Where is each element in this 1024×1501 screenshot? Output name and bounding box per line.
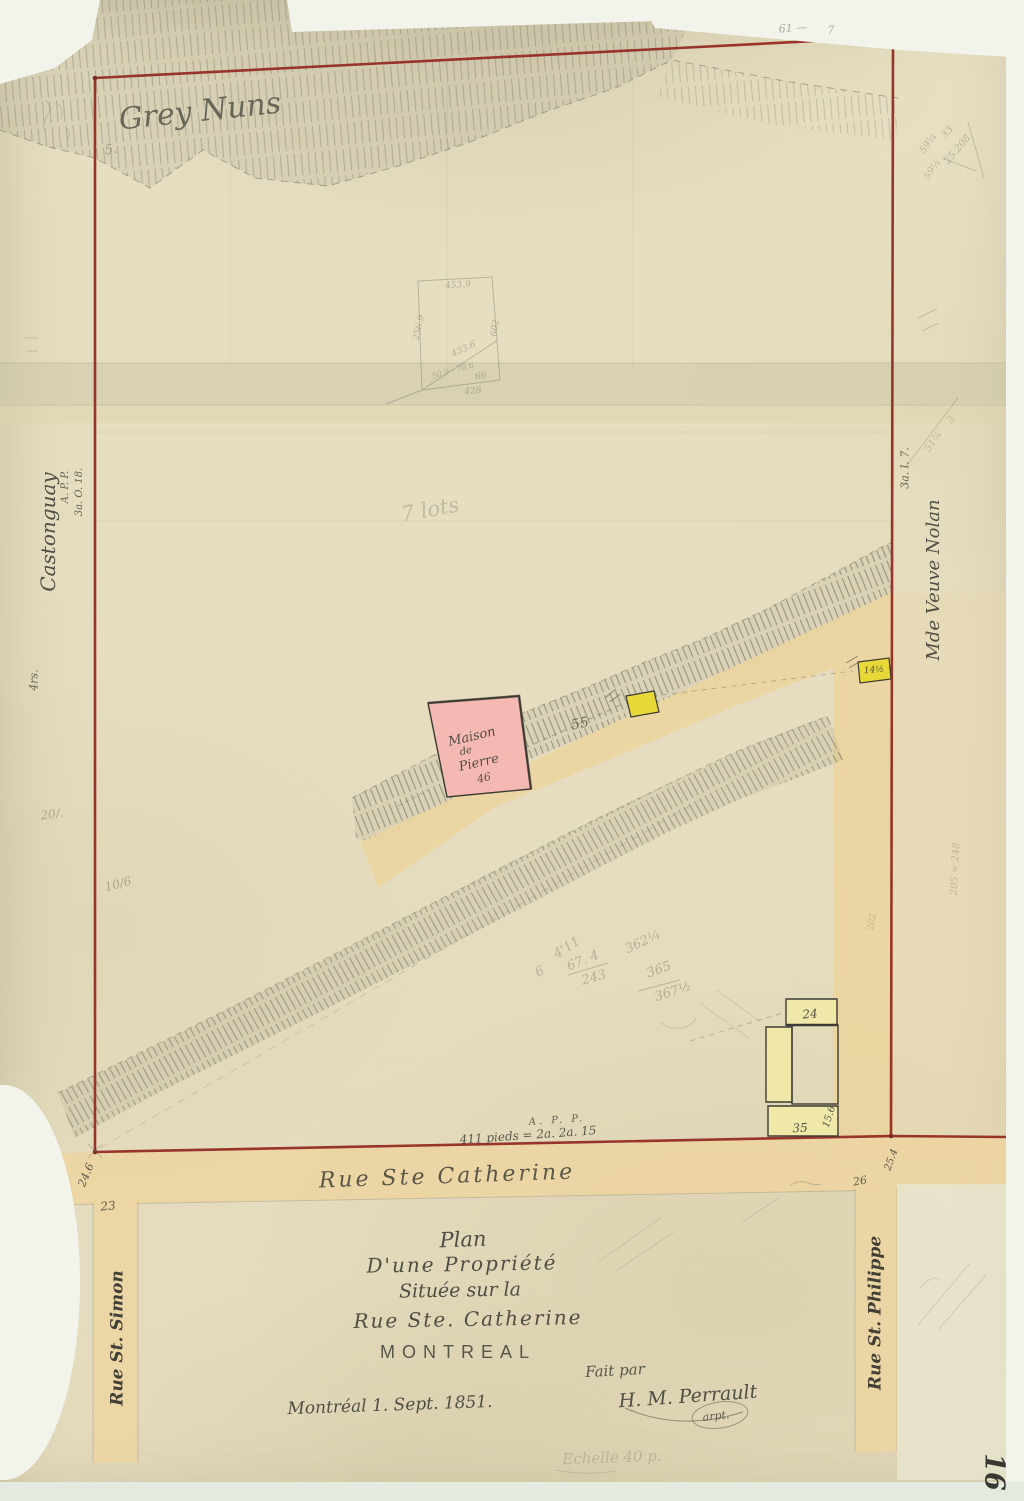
survey-plan-page: Grey Nuns5.CastonguayA. P. P.3a. O. 18.4… <box>0 0 1024 1501</box>
right-measure-label: 3a. l. 7. <box>900 447 911 489</box>
left-app-label: A. P. P. <box>61 471 71 504</box>
fait-par-label: Fait par <box>585 1362 645 1380</box>
grey-nuns-note-label: 5. <box>104 143 118 158</box>
pencil-61-label: 61 — <box>778 22 807 35</box>
maison-number-label: 46 <box>476 771 492 785</box>
title-line4-label: Rue Ste. Catherine <box>353 1307 582 1331</box>
right-inset-lighter-paper <box>897 1184 1006 1480</box>
yellow-sq-label-label: 14½ <box>864 666 885 676</box>
street-simon-label: Rue St. Simon <box>110 1270 127 1406</box>
sketch-4539-label: 453.9 <box>445 281 471 291</box>
backing-right-edge <box>1006 0 1024 1501</box>
backing-bottom-edge <box>0 1482 1024 1501</box>
sketch-66-label: 66 <box>475 372 488 383</box>
left-prs-label: 4rs. <box>29 669 40 690</box>
left-measure-label: 3a. O. 18. <box>75 468 85 517</box>
street-philippe-label: Rue St. Philippe <box>868 1236 885 1390</box>
owner-castonguay-label: Castonguay <box>38 472 58 591</box>
title-line3-label: Située sur la <box>399 1280 521 1301</box>
note-20-label: 20/. <box>40 806 65 821</box>
folio-16-label: 16 <box>981 1453 1008 1491</box>
owner-nolan-label: Mde Veuve Nolan <box>925 499 943 660</box>
title-plan-label: Plan <box>439 1229 487 1252</box>
sketch-428-label: 428 <box>464 387 482 397</box>
title-line2-label: D'une Propriété <box>366 1252 557 1275</box>
lot-26-label: 26 <box>852 1174 868 1187</box>
boundary-corner-dots <box>93 35 896 1155</box>
lot-23-label: 23 <box>100 1199 116 1212</box>
signature-title-label: arpt. <box>702 1409 730 1423</box>
pencil-7-label: 7 <box>828 25 835 36</box>
scale-note-label: Echelle 40 p. <box>562 1449 662 1467</box>
lot-35-label-label: 35 <box>792 1122 808 1135</box>
measure-55-label: 55 <box>570 715 590 732</box>
middle-escarpment <box>352 542 893 844</box>
lot-24-label-label: 24 <box>802 1007 818 1020</box>
upper-cross-band <box>0 363 1024 423</box>
title-montreal-label: MONTREAL <box>380 1343 536 1361</box>
